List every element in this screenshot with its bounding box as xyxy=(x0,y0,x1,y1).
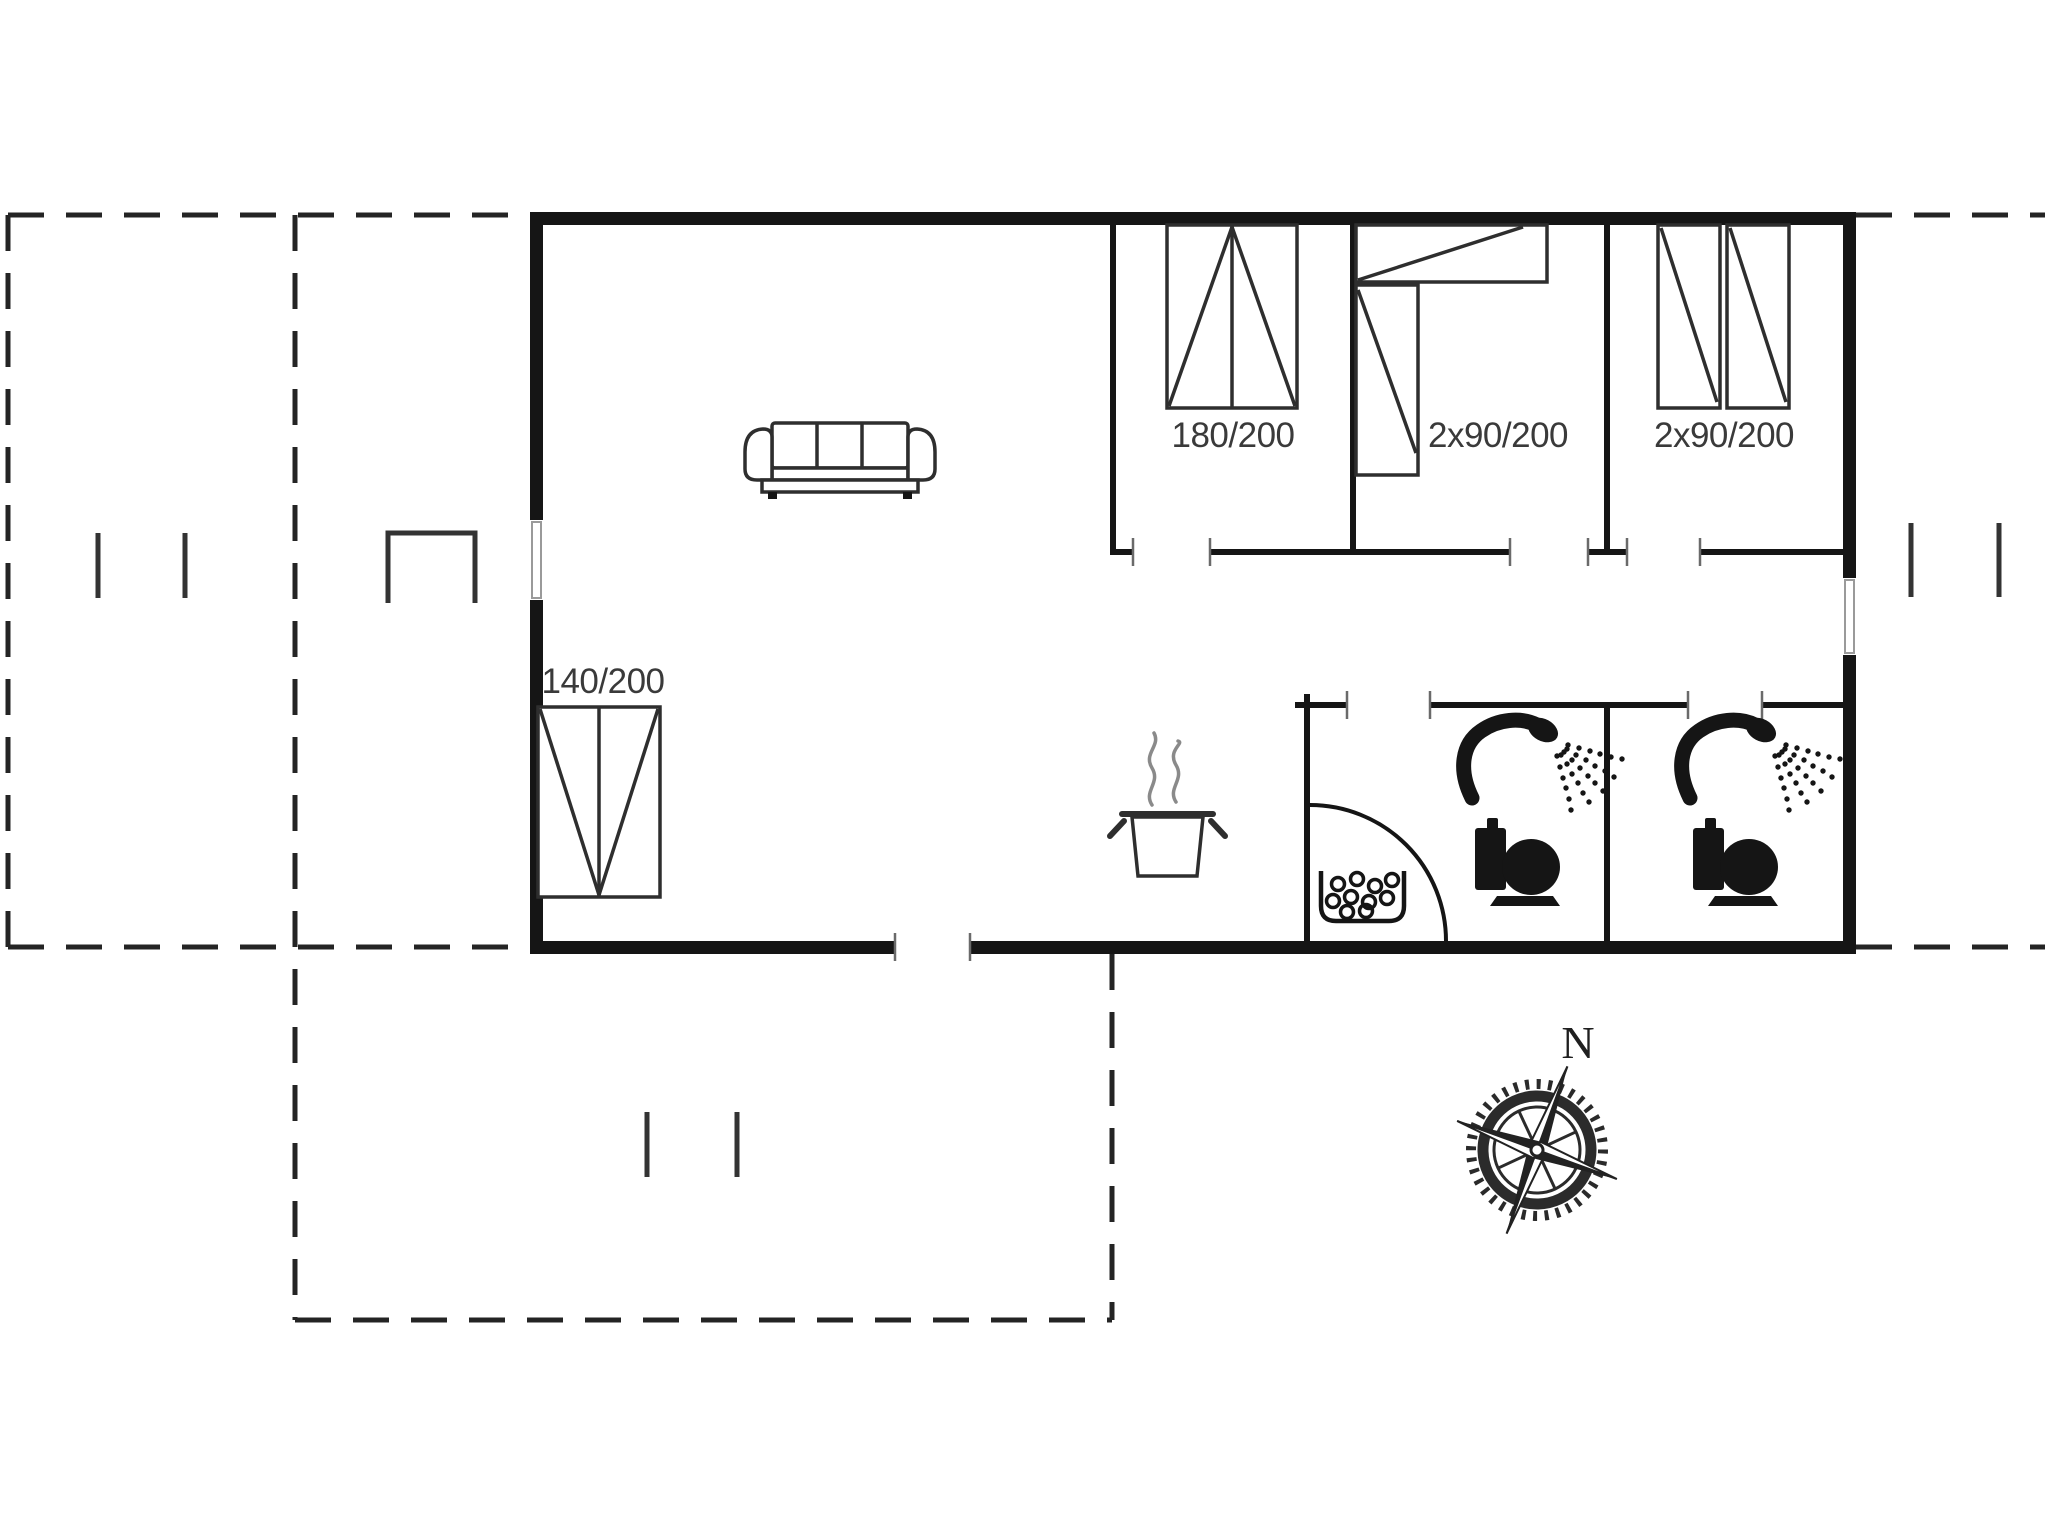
north-label: N xyxy=(1561,1017,1594,1068)
bed-size-label-bedroom2: 2x90/200 xyxy=(1428,416,1568,455)
double-bed-140-icon xyxy=(538,707,660,897)
bed-size-label-bedroom3: 2x90/200 xyxy=(1654,416,1794,455)
steam-icon xyxy=(1149,733,1179,805)
window-right xyxy=(1845,580,1854,653)
bathroom1-fixtures xyxy=(1464,713,1625,906)
grill-symbol xyxy=(388,533,475,603)
sofa-icon xyxy=(745,423,935,499)
twin-beds-icon xyxy=(1658,225,1789,408)
bathroom2-fixtures xyxy=(1682,713,1843,906)
window-left xyxy=(532,522,541,598)
double-bed-180-icon xyxy=(1167,225,1297,408)
washbasin-icon xyxy=(1321,871,1404,921)
terrace-left-outline xyxy=(8,215,530,947)
bed-size-label-living: 140/200 xyxy=(541,662,664,701)
cooking-pot-icon xyxy=(1110,814,1225,876)
compass-rose-icon: N xyxy=(1427,1017,1648,1263)
terrace-bottom-outline xyxy=(295,954,1112,1320)
floor-plan: 180/200 2x90/200 2x90/200 140/200 xyxy=(0,0,2048,1536)
bed-size-label-bedroom1: 180/200 xyxy=(1171,416,1294,455)
terrace-right-outline xyxy=(1856,215,2045,947)
